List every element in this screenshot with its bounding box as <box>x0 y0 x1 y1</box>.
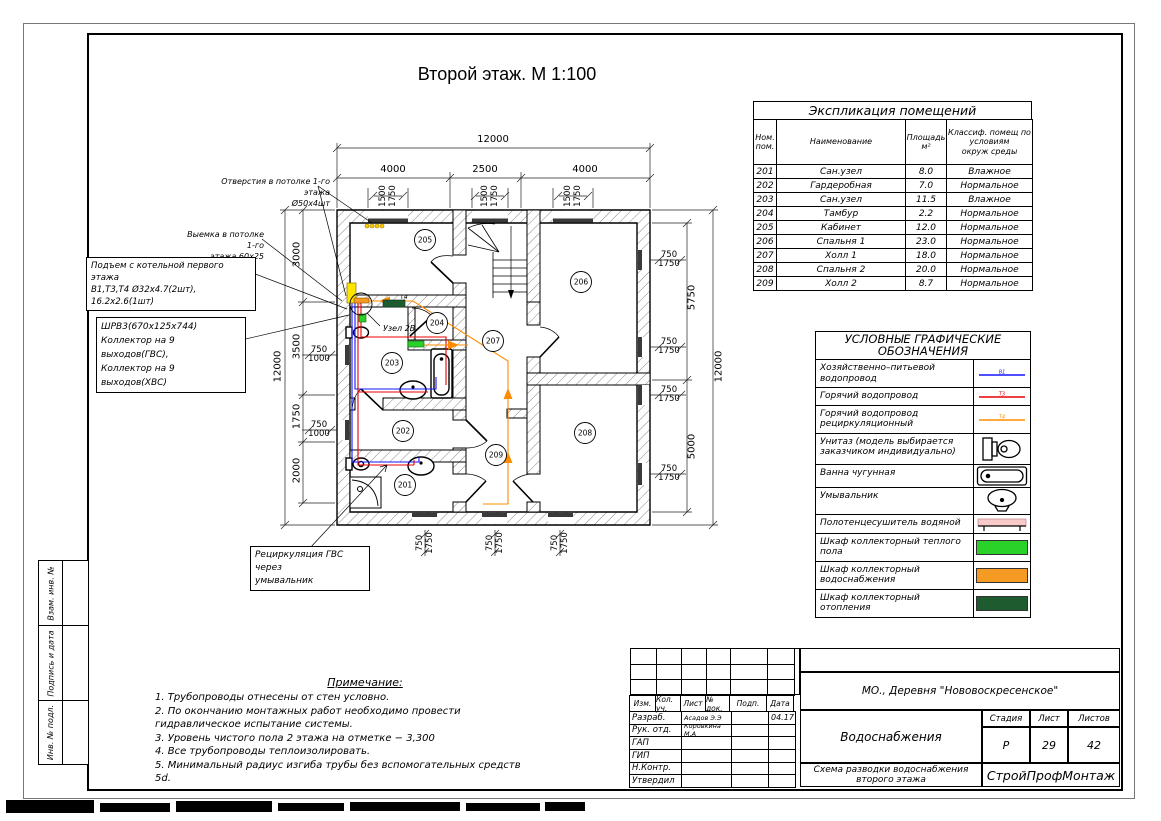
titleblock-empty-cell <box>681 679 707 696</box>
legend-row: Хозяйственно–питьевой водопроводВ1 <box>816 360 1030 388</box>
stamp-label: Подпись и дата <box>47 630 56 696</box>
dim-chain: 3000 <box>292 235 303 275</box>
dim-window-pair: 7501750 <box>484 525 506 561</box>
room-number: 207 <box>486 337 501 346</box>
titleblock-stage-value: Р <box>982 727 1030 763</box>
page-title: Второй этаж. М 1:100 <box>377 64 637 85</box>
swatch-icon <box>973 562 1030 589</box>
titleblock-empty-cell <box>706 664 731 681</box>
legend-row: Шкаф коллекторный водоснабжения <box>816 562 1030 590</box>
explication-cell: Сан.узел <box>777 165 906 179</box>
explication-cell: Нормальное <box>947 207 1033 221</box>
svg-text:Т3: Т3 <box>999 392 1005 398</box>
titleblock-doc-title: Водоснабжения <box>800 710 982 763</box>
staff-role: Разраб. <box>629 711 682 725</box>
titleblock-empty-cell <box>730 679 768 696</box>
staff-signature <box>731 749 769 763</box>
explication-cell: 202 <box>754 179 777 193</box>
legend-row: Шкаф коллекторный теплого пола <box>816 534 1030 562</box>
explication-cell: 208 <box>754 263 777 277</box>
titleblock-empty-cell <box>767 679 795 696</box>
staff-signature <box>731 762 769 776</box>
titleblock-empty-cell <box>706 648 731 665</box>
explication-cell: Холл 2 <box>777 277 906 291</box>
note-item: 1. Трубопроводы отнесены от стен условно… <box>155 691 530 705</box>
explication-cell: 12.0 <box>906 221 947 235</box>
staff-name: Коровкина М.А <box>681 724 732 738</box>
explication-cell: 20.0 <box>906 263 947 277</box>
explication-row: 203Сан.узел11.5Влажное <box>754 193 1033 207</box>
legend-label: Умывальник <box>816 488 973 514</box>
explication-row: 206Спальня 123.0Нормальное <box>754 235 1033 249</box>
staff-role: Н.Контр. <box>629 762 682 776</box>
explication-header: Площадь м² <box>906 120 947 165</box>
titleblock-empty-cell <box>681 648 707 665</box>
explication-cell: Нормальное <box>947 277 1033 291</box>
titleblock-empty-cell <box>706 679 731 696</box>
titleblock-sheet-label: Лист <box>1030 710 1068 727</box>
sink-icon <box>973 488 1030 514</box>
titleblock-empty-cell <box>730 664 768 681</box>
t4-pipe-label: Т4 <box>399 294 408 301</box>
titleblock-company: СтройПрофМонтаж <box>982 763 1120 787</box>
dim-overall-right: 12000 <box>714 337 725 397</box>
swatch-icon <box>973 590 1030 617</box>
explication-cell: Сан.узел <box>777 193 906 207</box>
explication-row: 208Спальня 220.0Нормальное <box>754 263 1033 277</box>
titleblock-empty-cell <box>767 664 795 681</box>
note-item: 4. Все трубопроводы теплоизолировать. <box>155 745 530 759</box>
callout-ceiling-holes: Отверстия в потолке 1-го этажа Ø50х4шт <box>200 176 330 209</box>
explication-row: 204Тамбур2.2Нормальное <box>754 207 1033 221</box>
explication-table: Экспликация помещений Ном. пом. Наименов… <box>753 101 1032 291</box>
explication-cell: 8.0 <box>906 165 947 179</box>
titleblock-sheet-value: 29 <box>1030 727 1068 763</box>
explication-cell: 206 <box>754 235 777 249</box>
dim-chain: 2000 <box>292 451 303 491</box>
towel-icon <box>973 515 1030 533</box>
explication-body: 201Сан.узел8.0Влажное202Гардеробная7.0Но… <box>754 165 1033 291</box>
staff-role: Рук. отд. <box>629 724 682 738</box>
legend-label: Шкаф коллекторный водоснабжения <box>816 562 973 589</box>
titleblock-stage-label: Стадия <box>982 710 1030 727</box>
explication-cell: 7.0 <box>906 179 947 193</box>
explication-row: 201Сан.узел8.0Влажное <box>754 165 1033 179</box>
staff-signature <box>731 724 769 738</box>
titleblock-empty-cell <box>730 648 768 665</box>
legend-row: Ванна чугунная <box>816 465 1030 488</box>
legend-label: Полотенцесушитель водяной <box>816 515 973 533</box>
staff-name <box>681 749 732 763</box>
staff-date: 04.17 <box>768 711 796 725</box>
dim-window-pair: 7501750 <box>652 464 686 484</box>
legend-row: Шкаф коллекторный отопления <box>816 590 1030 617</box>
staff-signature <box>731 711 769 725</box>
swatch-icon <box>973 534 1030 561</box>
uzel-label: Узел 2В <box>383 324 415 333</box>
staff-name: Асадов Э.Э <box>681 711 732 725</box>
stairs-down-arrow <box>508 290 514 299</box>
titleblock-header: Подп. <box>729 695 767 712</box>
titleblock-header: Лист <box>680 695 706 712</box>
stamp-box-podpis-empty <box>62 625 89 702</box>
explication-header-row: Ном. пом. Наименование Площадь м² Класси… <box>754 120 1033 165</box>
legend-rows: Хозяйственно–питьевой водопроводВ1Горячи… <box>816 360 1030 617</box>
dim-bay: 2500 <box>445 164 525 175</box>
room-number: 209 <box>489 451 504 460</box>
callout-collector-box: ШРВ3(670х125х744) Коллектор на 9 выходов… <box>96 317 246 393</box>
explication-cell: Влажное <box>947 165 1033 179</box>
titleblock-location: МО., Деревня "Нововоскресенское" <box>800 672 1120 710</box>
room-number: 202 <box>396 427 411 436</box>
explication-cell: 203 <box>754 193 777 207</box>
staff-role: Утвердил <box>629 774 682 788</box>
legend-label: Шкаф коллекторный теплого пола <box>816 534 973 561</box>
explication-cell: Кабинет <box>777 221 906 235</box>
dim-window-pair: 7501000 <box>302 345 336 365</box>
notes-list: 1. Трубопроводы отнесены от стен условно… <box>155 691 530 786</box>
dim-chain: 5000 <box>687 425 698 469</box>
room-number: 208 <box>578 429 593 438</box>
explication-cell: Нормальное <box>947 235 1033 249</box>
titleblock-sheets-value: 42 <box>1068 727 1120 763</box>
explication-cell: 207 <box>754 249 777 263</box>
titleblock-header: Дата <box>766 695 794 712</box>
staff-signature <box>731 736 769 750</box>
titleblock-header: Кол. уч. <box>655 695 681 712</box>
room-number: 204 <box>430 319 445 328</box>
dim-overall-left: 12000 <box>273 337 284 397</box>
titleblock-staff: Разраб.Асадов Э.Э04.17Рук. отд.Коровкина… <box>630 712 800 787</box>
dim-overall-top: 12000 <box>403 134 583 145</box>
dim-window-pair: 7501750 <box>414 525 436 561</box>
dim-bay: 4000 <box>353 164 433 175</box>
titleblock-empty-cell <box>681 664 707 681</box>
legend-label: Горячий водопровод <box>816 388 973 405</box>
explication-row: 209Холл 28.7Нормальное <box>754 277 1033 291</box>
stamp-box-vzam: Взам. инв. № <box>38 560 64 627</box>
titleblock-empty-cell <box>656 679 682 696</box>
staff-name <box>681 762 732 776</box>
room-number: 206 <box>574 278 589 287</box>
titleblock-empty-cell <box>656 664 682 681</box>
note-item: 5. Минимальный радиус изгиба трубы без в… <box>155 759 530 786</box>
explication-cell: 18.0 <box>906 249 947 263</box>
dim-window-pair: 7501750 <box>652 385 686 405</box>
stamp-box-podpis: Подпись и дата <box>38 625 64 702</box>
svg-text:Т4: Т4 <box>999 415 1005 421</box>
legend-table: УСЛОВНЫЕ ГРАФИЧЕСКИЕ ОБОЗНАЧЕНИЯ Хозяйст… <box>815 331 1031 618</box>
staff-date <box>768 749 796 763</box>
explication-row: 207Холл 118.0Нормальное <box>754 249 1033 263</box>
line-icon: В1 <box>973 360 1030 387</box>
legend-row: Горячий водопровод рециркуляционныйТ4 <box>816 406 1030 434</box>
explication-cell: 2.2 <box>906 207 947 221</box>
explication-cell: Гардеробная <box>777 179 906 193</box>
bath-icon <box>973 465 1030 487</box>
staff-name <box>681 736 732 750</box>
stairs-icon <box>468 224 527 299</box>
titleblock-header-row: Изм. Кол. уч. Лист № док. Подп. Дата <box>630 695 800 712</box>
legend-row: Унитаз (модель выбирается заказчиком инд… <box>816 434 1030 465</box>
legend-row: Умывальник <box>816 488 1030 515</box>
explication-header: Классиф. помещ по условиям окруж среды <box>947 120 1033 165</box>
explication-cell: Нормальное <box>947 263 1033 277</box>
explication-cell: Спальня 2 <box>777 263 906 277</box>
staff-role: ГИП <box>629 749 682 763</box>
explication-cell: Нормальное <box>947 179 1033 193</box>
line-icon: Т3 <box>973 388 1030 405</box>
titleblock-empty-cell <box>656 648 682 665</box>
explication-cell: 204 <box>754 207 777 221</box>
explication-cell: Нормальное <box>947 221 1033 235</box>
stamp-label: Взам. инв. № <box>47 566 56 620</box>
staff-date <box>768 724 796 738</box>
explication-cell: Тамбур <box>777 207 906 221</box>
staff-role: ГАП <box>629 736 682 750</box>
room-number: 203 <box>385 359 400 368</box>
dim-chain: 3500 <box>292 327 303 367</box>
legend-label: Ванна чугунная <box>816 465 973 487</box>
stamp-label: Инв. № подл. <box>47 705 56 760</box>
dim-chain: 1750 <box>292 397 303 437</box>
explication-cell: 8.7 <box>906 277 947 291</box>
explication-cell: Влажное <box>947 193 1033 207</box>
line-icon: Т4 <box>973 406 1030 433</box>
notes-title: Примечание: <box>295 676 435 689</box>
room-number: 201 <box>398 481 413 490</box>
explication-title: Экспликация помещений <box>753 101 1032 119</box>
dim-window-pair: 7501000 <box>302 420 336 440</box>
toilet-icon <box>973 434 1030 464</box>
titleblock-header: Изм. <box>629 695 656 712</box>
dim-window-pair: 7501750 <box>652 337 686 357</box>
dim-window-pair: 15001750 <box>377 178 399 214</box>
callout-riser-box: Подъем с котельной первого этажа В1,Т3,Т… <box>86 257 256 311</box>
drawing-sheet: { "title": "Второй этаж. М 1:100", "expl… <box>0 0 1161 821</box>
dim-window-pair: 15001750 <box>562 178 584 214</box>
explication-header: Ном. пом. <box>754 120 777 165</box>
staff-signature <box>731 774 769 788</box>
legend-label: Шкаф коллекторный отопления <box>816 590 973 617</box>
explication-cell: 11.5 <box>906 193 947 207</box>
note-item: 3. Уровень чистого пола 2 этажа на отмет… <box>155 732 530 746</box>
note-item: 2. По окончанию монтажных работ необходи… <box>155 705 530 732</box>
svg-text:В1: В1 <box>999 369 1006 375</box>
legend-label: Горячий водопровод рециркуляционный <box>816 406 973 433</box>
legend-row: Горячий водопроводТ3 <box>816 388 1030 406</box>
explication-cell: 209 <box>754 277 777 291</box>
titleblock-staff-row: Утвердил <box>630 775 800 788</box>
titleblock-empty-cell <box>630 648 657 665</box>
titleblock-grid <box>630 648 800 695</box>
staff-name <box>681 774 732 788</box>
dim-window-pair: 7501750 <box>549 525 571 561</box>
explication-cell: 23.0 <box>906 235 947 249</box>
dim-bay: 4000 <box>545 164 625 175</box>
callout-recirculation-box: Рециркуляция ГВС через умывальник <box>250 546 370 591</box>
stamp-box-inv: Инв. № подл. <box>38 700 64 765</box>
legend-label: Унитаз (модель выбирается заказчиком инд… <box>816 434 973 464</box>
stamp-box-inv-empty <box>62 700 89 765</box>
dim-chain: 5750 <box>687 276 698 320</box>
titleblock-empty-cell <box>767 648 795 665</box>
titleblock-empty-cell <box>630 664 657 681</box>
title-block: Изм. Кол. уч. Лист № док. Подп. Дата Раз… <box>630 648 1120 787</box>
titleblock-empty-cell <box>630 679 657 696</box>
legend-row: Полотенцесушитель водяной <box>816 515 1030 534</box>
legend-label: Хозяйственно–питьевой водопровод <box>816 360 973 387</box>
explication-cell: Холл 1 <box>777 249 906 263</box>
explication-row: 202Гардеробная7.0Нормальное <box>754 179 1033 193</box>
explication-row: 205Кабинет12.0Нормальное <box>754 221 1033 235</box>
legend-title: УСЛОВНЫЕ ГРАФИЧЕСКИЕ ОБОЗНАЧЕНИЯ <box>816 332 1030 360</box>
titleblock-header: № док. <box>705 695 730 712</box>
staff-date <box>768 774 796 788</box>
room-number: 205 <box>418 236 433 245</box>
explication-cell: 205 <box>754 221 777 235</box>
titleblock-top-strip <box>800 648 1120 672</box>
explication-cell: Спальня 1 <box>777 235 906 249</box>
dim-window-pair: 15001750 <box>479 178 501 214</box>
staff-date <box>768 736 796 750</box>
dim-window-pair: 7501750 <box>652 250 686 270</box>
titleblock-drawing-title: Схема разводки водоснабжения второго эта… <box>800 763 982 787</box>
staff-date <box>768 762 796 776</box>
explication-cell: 201 <box>754 165 777 179</box>
explication-cell: Нормальное <box>947 249 1033 263</box>
explication-header: Наименование <box>777 120 906 165</box>
titleblock-sheets-label: Листов <box>1068 710 1120 727</box>
